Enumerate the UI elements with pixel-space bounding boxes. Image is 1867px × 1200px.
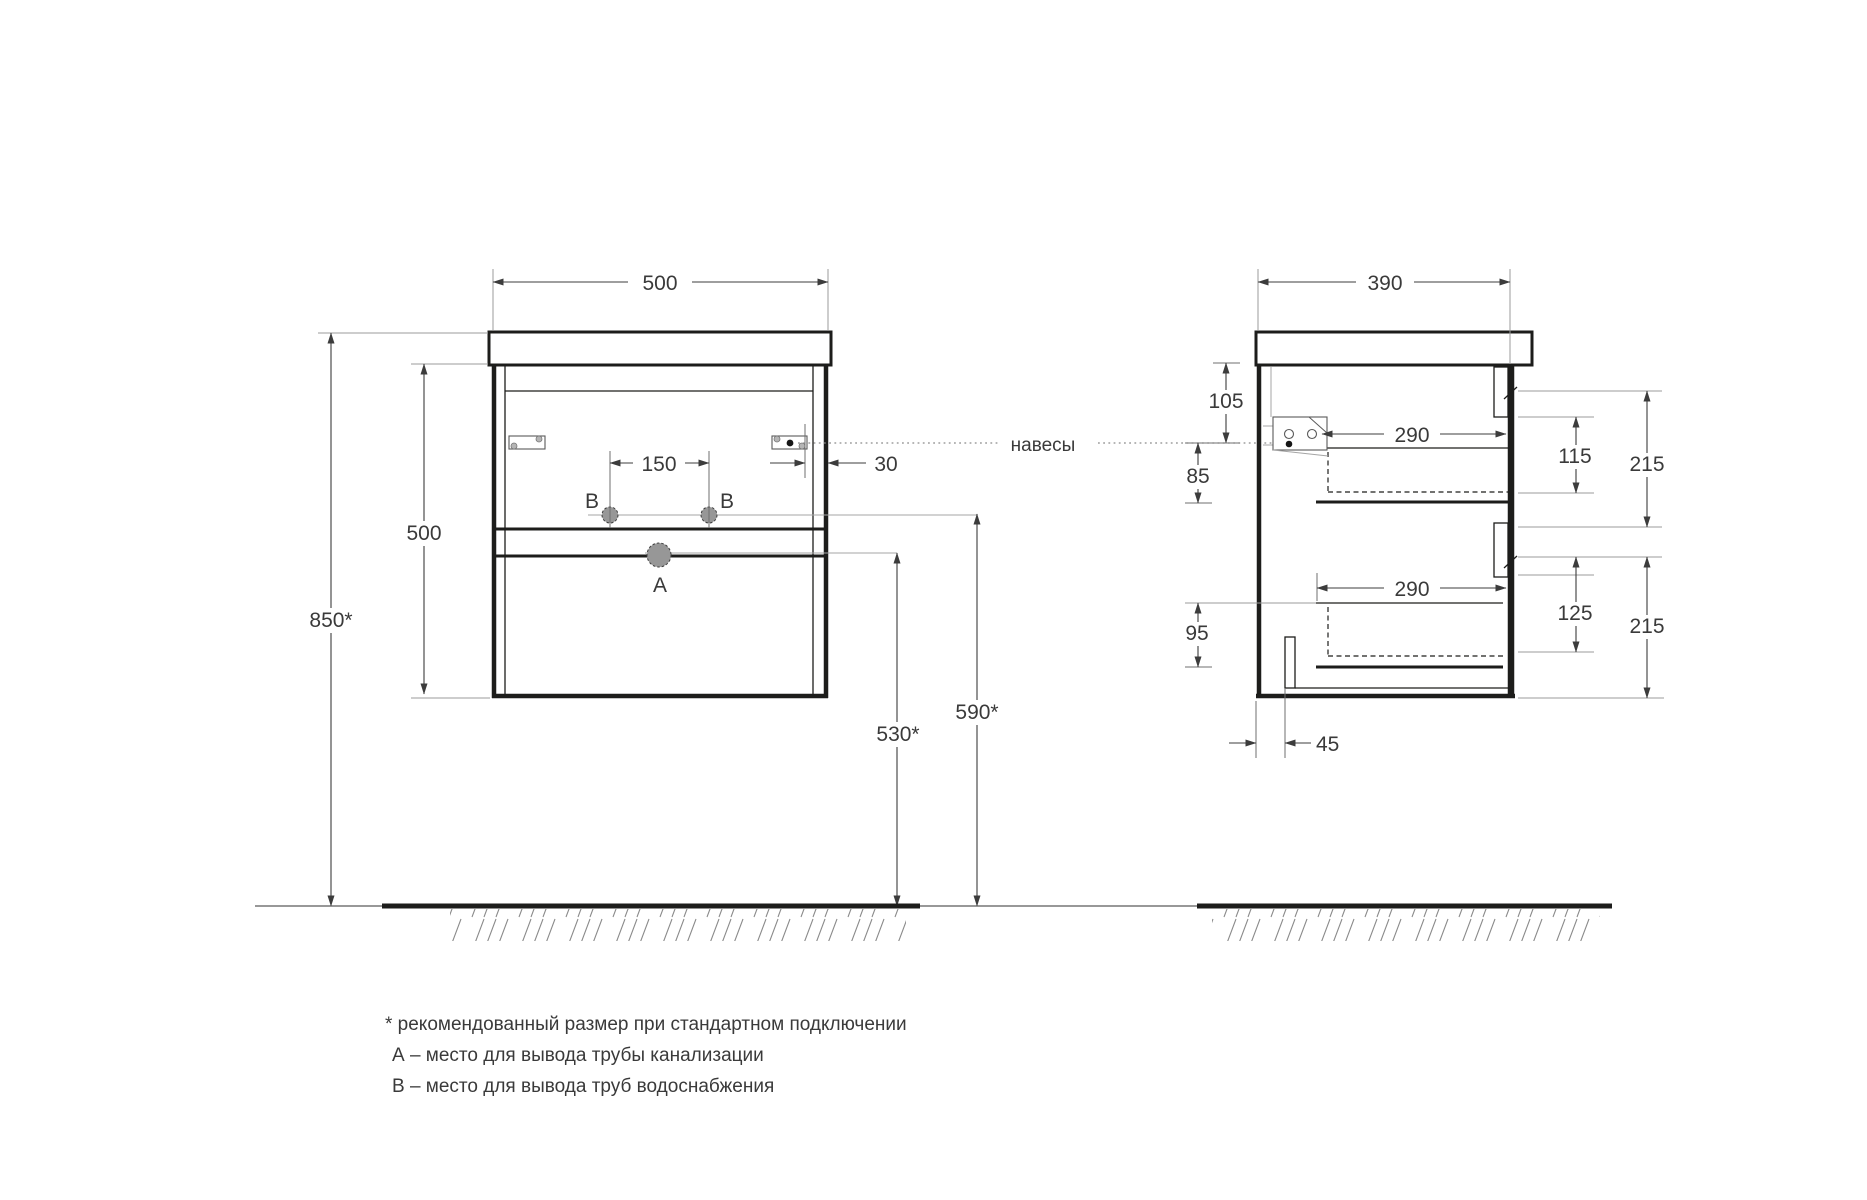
front-view: B B A — [489, 332, 977, 698]
dim-drain-outlet-height: 530* — [864, 553, 932, 906]
dim-side-depth-value: 390 — [1367, 272, 1402, 295]
hanger-point-side — [1286, 441, 1293, 448]
side-extension-lines — [1518, 391, 1664, 698]
legend-item-b: В – место для вывода труб водоснабжения — [392, 1076, 774, 1097]
dim-drawer-top-depth: 290 — [1322, 423, 1506, 447]
dim-supply-spacing: 150 — [610, 451, 709, 528]
hangers-callout: навесы — [798, 435, 1286, 456]
dim-drawer-bottom-front-height-value: 215 — [1629, 615, 1664, 638]
hanger-point-front — [787, 440, 794, 447]
vanity-installation-diagram: B B A 500 500 850* 150 30 53 — [0, 0, 1867, 1200]
dim-drawer-top-inner-height: 115 — [1552, 417, 1600, 493]
dim-side-depth: 390 — [1258, 269, 1510, 364]
dim-hanger-inset: 85 — [1175, 443, 1240, 503]
hangers-callout-label: навесы — [1011, 435, 1076, 456]
side-view — [1256, 332, 1532, 698]
dim-drawer-top-front-height: 215 — [1620, 391, 1674, 527]
dim-front-cabinet-height-value: 500 — [406, 522, 441, 545]
side-drawer-top — [1316, 448, 1508, 502]
dim-front-width: 500 — [493, 269, 828, 330]
label-b-left: B — [585, 490, 599, 513]
dim-front-cabinet-height: 500 — [392, 364, 490, 698]
dim-drain-outlet-height-value: 530* — [876, 723, 919, 746]
dim-drawer-bottom-depth: 290 — [1317, 573, 1506, 601]
label-b-right: B — [720, 490, 734, 513]
dim-supply-outlet-height-value: 590* — [955, 701, 998, 724]
floor-hatching-side — [1212, 909, 1600, 941]
dim-mount-height: 850* — [297, 333, 488, 906]
legend-note: * рекомендованный размер при стандартном… — [385, 1014, 907, 1035]
dim-drawer-top-inner-height-value: 115 — [1558, 445, 1591, 468]
wall-bracket-right — [772, 436, 807, 449]
floor — [255, 906, 1612, 941]
dim-top-inset-value: 105 — [1208, 390, 1243, 413]
technical-drawing-page: B B A 500 500 850* 150 30 53 — [0, 0, 1867, 1200]
dim-drawer-bottom-depth-value: 290 — [1394, 578, 1429, 601]
wall-bracket-left — [509, 436, 545, 449]
dim-supply-spacing-value: 150 — [641, 453, 676, 476]
dim-drawer-bottom-inner-height-value: 125 — [1557, 602, 1592, 625]
dim-bottom-inset-value: 95 — [1185, 622, 1208, 645]
legend-item-a: А – место для вывода трубы канализации — [392, 1045, 764, 1066]
dim-back-offset-value: 45 — [1316, 733, 1339, 756]
front-countertop — [489, 332, 831, 365]
dim-back-offset: 45 — [1229, 689, 1339, 758]
legend: * рекомендованный размер при стандартном… — [385, 1014, 907, 1097]
dim-top-inset: 105 — [1199, 363, 1253, 443]
dim-supply-outlet-height: 590* — [943, 514, 1011, 906]
dim-drawer-top-depth-value: 290 — [1394, 424, 1429, 447]
drain-hole — [647, 543, 671, 567]
dim-drawer-bottom-front-height: 215 — [1620, 557, 1674, 698]
dim-wall-offset-value: 30 — [874, 453, 897, 476]
side-countertop — [1256, 332, 1532, 365]
label-a: A — [653, 574, 667, 597]
side-drawer-bottom — [1316, 603, 1503, 667]
side-back-support — [1285, 637, 1295, 688]
floor-hatching-front — [450, 909, 906, 941]
dim-drawer-bottom-inner-height: 125 — [1552, 557, 1600, 652]
hanger-side — [1263, 367, 1328, 456]
dim-mount-height-value: 850* — [309, 609, 352, 632]
dim-wall-offset: 30 — [770, 424, 898, 478]
dim-drawer-top-front-height-value: 215 — [1629, 453, 1664, 476]
dim-hanger-inset-value: 85 — [1186, 465, 1209, 488]
dim-front-width-value: 500 — [642, 272, 677, 295]
